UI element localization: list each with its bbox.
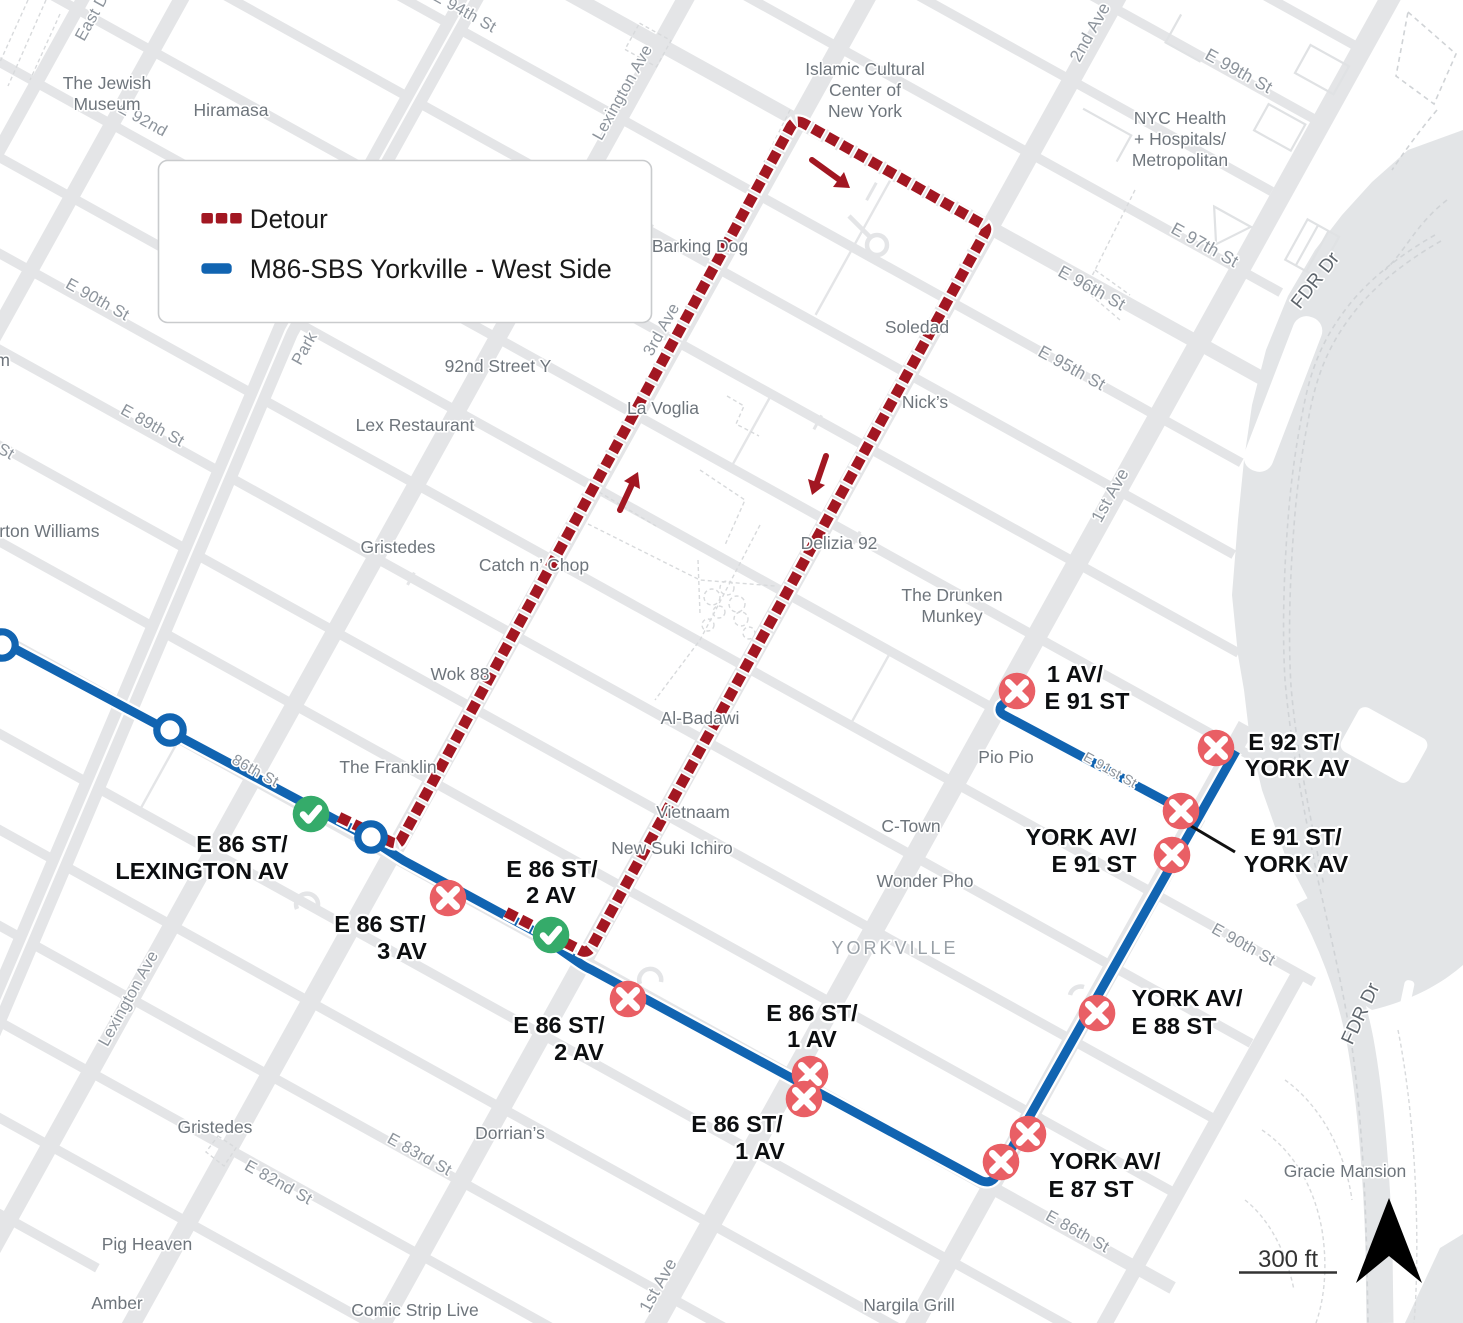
svg-text:Metropolitan: Metropolitan — [1132, 150, 1228, 170]
svg-text:Center of: Center of — [829, 80, 901, 100]
svg-text:E 86 ST/: E 86 ST/ — [196, 831, 288, 857]
svg-text:Gristedes: Gristedes — [178, 1117, 253, 1137]
svg-text:Pig Heaven: Pig Heaven — [102, 1234, 192, 1254]
svg-text:YORK AV/: YORK AV/ — [1132, 985, 1243, 1011]
svg-text:E 86 ST/: E 86 ST/ — [513, 1012, 605, 1038]
svg-text:2 AV: 2 AV — [554, 1039, 604, 1065]
svg-text:Islamic Cultural: Islamic Cultural — [805, 59, 925, 79]
svg-text:2 AV: 2 AV — [526, 882, 576, 908]
svg-text:Wonder Pho: Wonder Pho — [877, 871, 974, 891]
svg-text:Lex Restaurant: Lex Restaurant — [356, 415, 475, 435]
svg-text:E 88 ST: E 88 ST — [1132, 1013, 1218, 1039]
svg-text:Gracie Mansion: Gracie Mansion — [1284, 1161, 1407, 1181]
svg-text:Munkey: Munkey — [921, 606, 983, 626]
svg-text:C-Town: C-Town — [881, 816, 940, 836]
svg-text:LEXINGTON AV: LEXINGTON AV — [115, 858, 289, 884]
svg-text:E 87 ST: E 87 ST — [1049, 1176, 1135, 1202]
svg-text:YORK AV/: YORK AV/ — [1050, 1148, 1161, 1174]
svg-text:1 AV/: 1 AV/ — [1047, 661, 1104, 687]
svg-text:The Jewish: The Jewish — [63, 73, 152, 93]
svg-text:Amber: Amber — [91, 1293, 143, 1313]
svg-text:Gristedes: Gristedes — [361, 537, 436, 557]
svg-text:Hiramasa: Hiramasa — [194, 100, 269, 120]
svg-text:Dorrian’s: Dorrian’s — [475, 1123, 545, 1143]
svg-text:E 86 ST/: E 86 ST/ — [691, 1111, 783, 1137]
svg-text:Detour: Detour — [250, 204, 328, 234]
svg-text:New York: New York — [828, 101, 902, 121]
svg-text:Wok 88: Wok 88 — [430, 664, 489, 684]
svg-text:Barking Dog: Barking Dog — [652, 236, 748, 256]
svg-text:E 91 ST/: E 91 ST/ — [1250, 824, 1342, 850]
svg-text:1 AV: 1 AV — [787, 1026, 837, 1052]
svg-text:Comic Strip Live: Comic Strip Live — [351, 1300, 478, 1320]
svg-text:Soledad: Soledad — [885, 317, 949, 337]
svg-text:300 ft: 300 ft — [1258, 1246, 1318, 1273]
svg-text:Vietnaam: Vietnaam — [656, 802, 730, 822]
svg-text:YORK AV: YORK AV — [1244, 851, 1349, 877]
svg-text:New Suki Ichiro: New Suki Ichiro — [611, 838, 733, 858]
svg-text:Museum: Museum — [73, 94, 140, 114]
svg-text:Nick’s: Nick’s — [902, 392, 949, 412]
svg-text:The Drunken: The Drunken — [901, 585, 1002, 605]
svg-text:YORKVILLE: YORKVILLE — [831, 938, 958, 958]
svg-text:1 AV: 1 AV — [735, 1138, 785, 1164]
svg-text:3 AV: 3 AV — [377, 938, 427, 964]
svg-text:Al-Badawi: Al-Badawi — [661, 708, 740, 728]
svg-text:Morton Williams: Morton Williams — [0, 521, 100, 541]
svg-text:E 86 ST/: E 86 ST/ — [506, 856, 598, 882]
svg-text:YORK AV/: YORK AV/ — [1026, 824, 1137, 850]
svg-text:Delizia 92: Delizia 92 — [801, 533, 878, 553]
svg-text:NYC Health: NYC Health — [1134, 108, 1226, 128]
svg-text:92nd Street Y: 92nd Street Y — [445, 356, 552, 376]
svg-text:Pio Pio: Pio Pio — [978, 747, 1033, 767]
svg-text:m: m — [0, 350, 10, 370]
svg-text:YORK AV: YORK AV — [1245, 755, 1350, 781]
svg-text:The Franklin: The Franklin — [339, 757, 436, 777]
svg-text:E 86 ST/: E 86 ST/ — [334, 911, 426, 937]
svg-text:E 92 ST/: E 92 ST/ — [1248, 729, 1340, 755]
svg-text:La Voglia: La Voglia — [627, 398, 699, 418]
svg-text:Catch n’ Chop: Catch n’ Chop — [479, 555, 589, 575]
svg-text:E 91 ST: E 91 ST — [1045, 688, 1131, 714]
svg-text:M86-SBS Yorkville - West Side: M86-SBS Yorkville - West Side — [250, 254, 612, 284]
svg-text:E 91 ST: E 91 ST — [1052, 851, 1138, 877]
svg-text:Nargila Grill: Nargila Grill — [863, 1295, 954, 1315]
svg-text:E 86 ST/: E 86 ST/ — [766, 1000, 858, 1026]
svg-text:+ Hospitals/: + Hospitals/ — [1134, 129, 1226, 149]
